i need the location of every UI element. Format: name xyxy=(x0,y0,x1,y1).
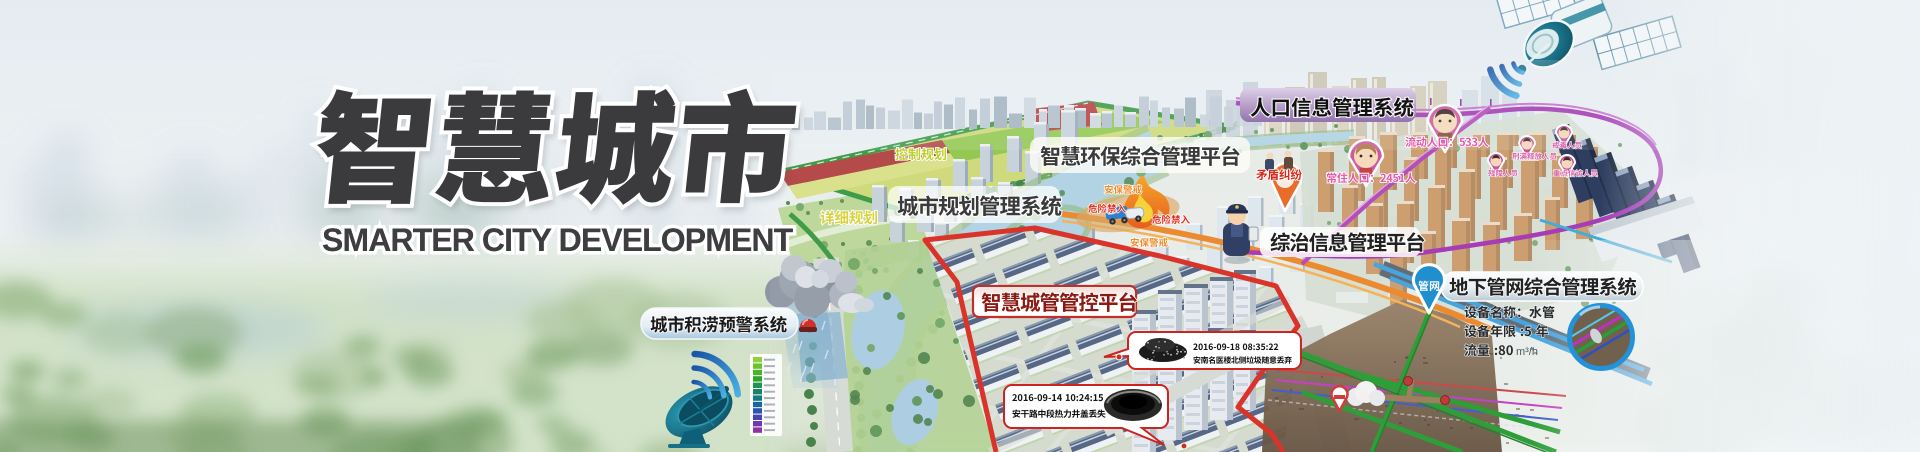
svg-text:m³/h: m³/h xyxy=(1516,346,1538,358)
svg-text:SMARTER CITY DEVELOPMENT: SMARTER CITY DEVELOPMENT xyxy=(322,222,794,258)
